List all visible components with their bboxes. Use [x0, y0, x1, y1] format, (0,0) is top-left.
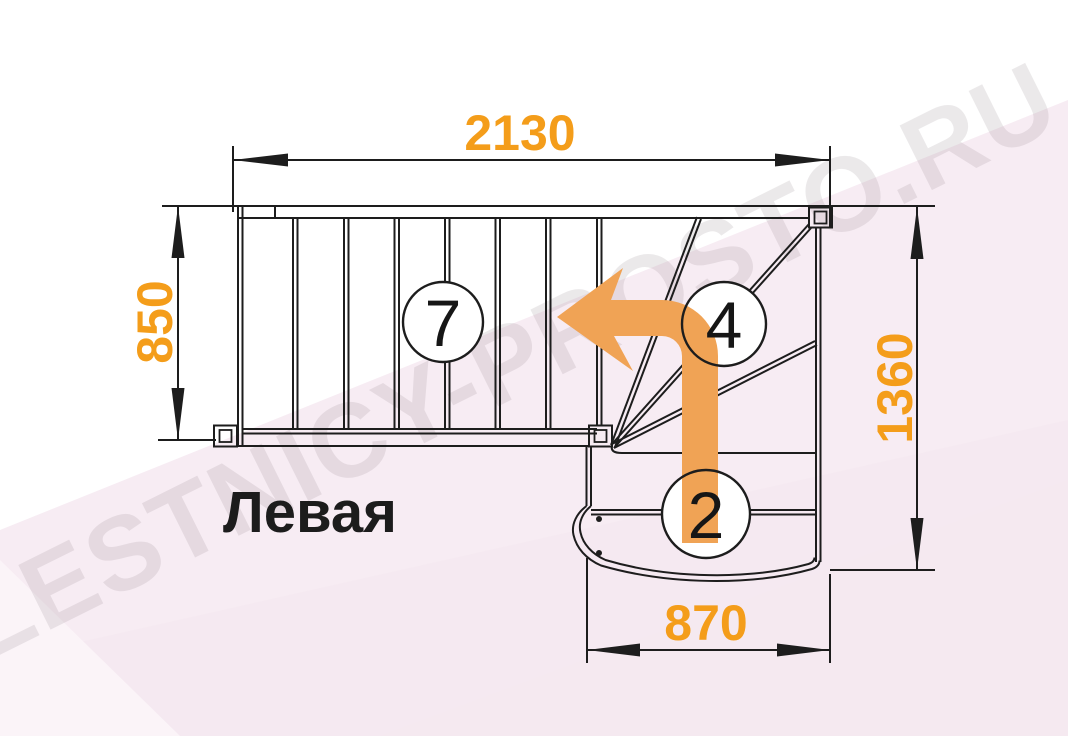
winder-step-count: 4 [706, 288, 743, 362]
dimension-right-height: 1360 [867, 332, 923, 443]
stair-plan-drawing: LESTNICY-PROSTO.RU [0, 0, 1068, 736]
straight-flight-step-count: 7 [425, 286, 462, 360]
baluster-dot [596, 550, 602, 556]
dimension-top-width: 2130 [464, 105, 575, 161]
dimension-bottom-width: 870 [664, 595, 747, 651]
dimension-left-depth: 850 [127, 280, 183, 363]
plan-title: Левая [223, 480, 397, 545]
baluster-dot [596, 516, 602, 522]
bottom-step-count: 2 [688, 478, 725, 552]
stair-plan-page: LESTNICY-PROSTO.RU [0, 0, 1068, 736]
